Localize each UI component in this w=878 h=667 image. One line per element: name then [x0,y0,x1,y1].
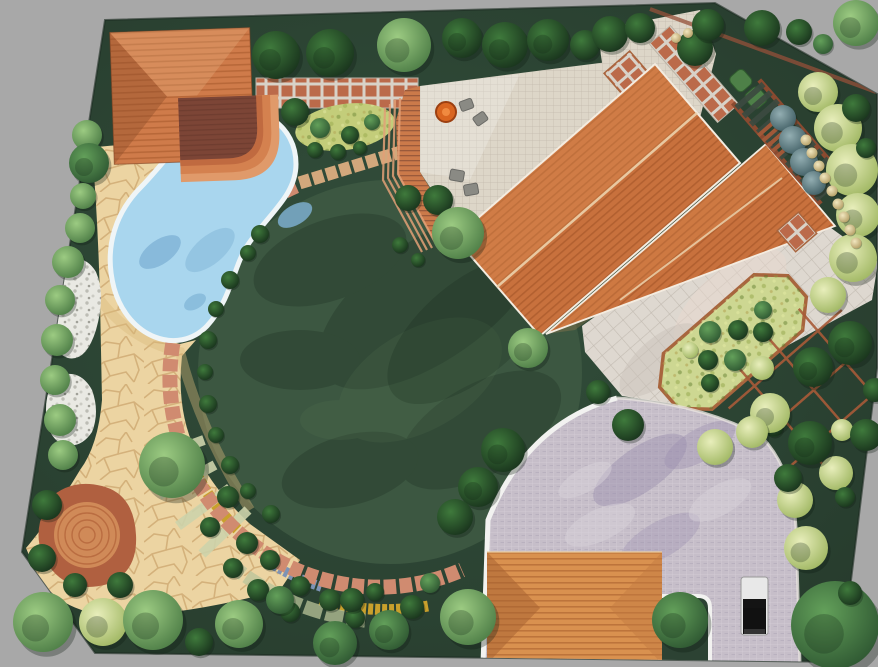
tree [838,581,862,605]
boxwood-ball [814,161,825,172]
shrub [251,225,269,243]
garage-roof [487,552,662,664]
tree [44,404,76,436]
bed-shrub [698,350,718,370]
tree [364,114,380,130]
tree [63,573,87,597]
tree [612,409,644,441]
tree [32,490,62,520]
tree [107,572,133,598]
tree [736,416,768,448]
tree [625,13,655,43]
tree [70,183,96,209]
tree [842,94,870,122]
landscape-plan-render [0,0,878,667]
fire-pit [436,102,456,122]
tree [810,277,846,313]
bed-shrub [682,342,698,358]
shrub [290,576,310,596]
tree [786,19,812,45]
boxwood-ball [851,238,862,249]
tree [340,588,364,612]
bed-shrub [753,322,773,342]
shrub [208,301,224,317]
shrub [319,589,341,611]
shrub [366,583,384,601]
shrub [208,427,224,443]
tree [592,16,628,52]
shrub [199,331,217,349]
shrub [200,517,220,537]
tree [856,138,876,158]
tree [341,126,359,144]
tree [813,34,833,54]
boxwood-ball [801,135,812,146]
tree [52,246,84,278]
tree [420,573,440,593]
tree [411,253,425,267]
shrub [236,532,258,554]
tree [774,464,802,492]
shrub [221,271,239,289]
bed-shrub [754,301,772,319]
tree [41,324,73,356]
tree [400,595,424,619]
tree [281,98,309,126]
tree [835,487,855,507]
tree [750,356,774,380]
shrub [217,486,239,508]
boxwood-ball [807,148,818,159]
shrub [247,579,269,601]
tree [266,586,294,614]
tree [330,144,346,160]
shrub [240,483,256,499]
bed-shrub [701,374,719,392]
bed-shrub [728,320,748,340]
tree [697,429,733,465]
tree [353,141,367,155]
shrub [223,558,243,578]
shrub [199,395,217,413]
tree [692,9,724,41]
tree [307,142,323,158]
boxwood-ball [845,225,856,236]
tree [185,628,213,656]
tree [586,380,610,404]
tree [395,185,421,211]
car [741,577,768,635]
shrub [197,364,213,380]
shrub [260,550,280,570]
bed-shrub [724,349,746,371]
tree [45,285,75,315]
tree [310,118,330,138]
boxwood-ball [671,33,681,43]
bed-shrub [699,321,721,343]
shrub [221,456,239,474]
pool-deck-steps [178,95,281,182]
shrub [262,505,280,523]
boxwood-ball [839,212,850,223]
tree [744,10,780,46]
tree [28,544,56,572]
tree [392,237,408,253]
tree [437,499,473,535]
tree [65,213,95,243]
boxwood-ball [827,186,838,197]
boxwood-ball [820,173,831,184]
tree [40,365,70,395]
shrub [240,245,256,261]
tree [831,419,853,441]
tree [48,440,78,470]
boxwood-ball [683,28,693,38]
boxwood-ball [833,199,844,210]
